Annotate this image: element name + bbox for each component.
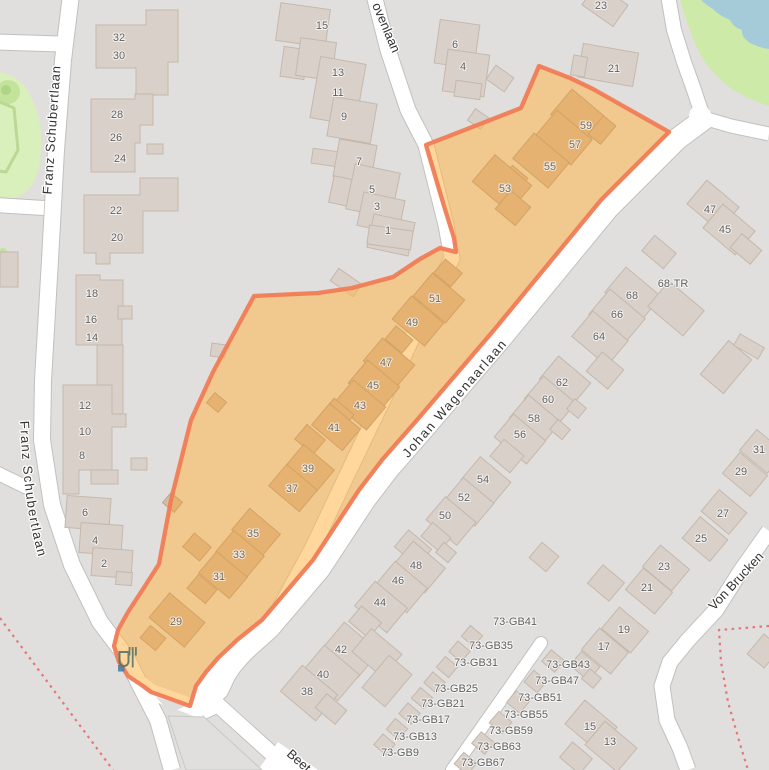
svg-text:4: 4 [92, 535, 98, 547]
svg-text:73-GB55: 73-GB55 [504, 709, 548, 721]
svg-text:68: 68 [626, 290, 638, 302]
svg-text:1: 1 [385, 225, 391, 237]
svg-text:6: 6 [82, 507, 88, 519]
svg-text:4: 4 [460, 61, 466, 73]
svg-text:57: 57 [569, 139, 581, 151]
svg-text:16: 16 [85, 314, 97, 326]
svg-text:31: 31 [213, 571, 225, 583]
svg-text:15: 15 [316, 20, 328, 32]
svg-text:56: 56 [514, 429, 526, 441]
svg-text:32: 32 [113, 32, 125, 44]
svg-text:68-TR: 68-TR [658, 278, 689, 290]
svg-text:73-GB47: 73-GB47 [535, 675, 579, 687]
svg-text:18: 18 [86, 288, 98, 300]
svg-text:25: 25 [695, 533, 707, 545]
svg-text:7: 7 [356, 156, 362, 168]
svg-text:40: 40 [317, 669, 329, 681]
svg-text:50: 50 [439, 510, 451, 522]
svg-text:29: 29 [170, 616, 182, 628]
svg-text:30: 30 [113, 50, 125, 62]
svg-text:55: 55 [544, 161, 556, 173]
svg-text:17: 17 [598, 641, 610, 653]
svg-text:41: 41 [328, 422, 340, 434]
svg-text:8: 8 [79, 450, 85, 462]
svg-text:62: 62 [556, 377, 568, 389]
svg-text:13: 13 [332, 67, 344, 79]
svg-text:44: 44 [374, 597, 386, 609]
svg-text:39: 39 [302, 463, 314, 475]
svg-text:73-GB35: 73-GB35 [469, 640, 513, 652]
svg-text:29: 29 [735, 466, 747, 478]
svg-text:73-GB43: 73-GB43 [546, 659, 590, 671]
svg-text:73-GB21: 73-GB21 [421, 698, 465, 710]
svg-text:20: 20 [111, 232, 123, 244]
svg-text:24: 24 [114, 153, 126, 165]
svg-text:45: 45 [719, 224, 731, 236]
svg-text:9: 9 [341, 111, 347, 123]
svg-text:58: 58 [528, 413, 540, 425]
svg-text:73-GB31: 73-GB31 [454, 657, 498, 669]
svg-text:51: 51 [429, 293, 441, 305]
svg-text:52: 52 [458, 492, 470, 504]
svg-text:73-GB17: 73-GB17 [406, 714, 450, 726]
svg-text:73-GB41: 73-GB41 [493, 616, 537, 628]
svg-text:47: 47 [380, 357, 392, 369]
svg-text:23: 23 [595, 0, 607, 12]
svg-text:21: 21 [641, 582, 653, 594]
svg-text:66: 66 [611, 309, 623, 321]
svg-text:15: 15 [584, 721, 596, 733]
svg-text:6: 6 [452, 39, 458, 51]
svg-text:59: 59 [580, 120, 592, 132]
svg-text:73-GB67: 73-GB67 [461, 757, 505, 769]
svg-text:3: 3 [374, 201, 380, 213]
svg-text:53: 53 [499, 183, 511, 195]
svg-text:38: 38 [301, 686, 313, 698]
svg-text:47: 47 [704, 204, 716, 216]
svg-text:26: 26 [110, 132, 122, 144]
svg-text:11: 11 [332, 87, 343, 99]
svg-text:22: 22 [110, 205, 122, 217]
svg-text:13: 13 [604, 736, 616, 748]
svg-text:21: 21 [608, 63, 620, 75]
svg-text:73-GB59: 73-GB59 [489, 725, 533, 737]
svg-text:49: 49 [406, 317, 418, 329]
svg-text:48: 48 [410, 560, 422, 572]
svg-text:60: 60 [542, 394, 554, 406]
svg-text:23: 23 [658, 561, 670, 573]
svg-text:37: 37 [286, 483, 298, 495]
svg-text:5: 5 [369, 184, 375, 196]
svg-text:73-GB25: 73-GB25 [434, 683, 478, 695]
svg-text:54: 54 [477, 474, 489, 486]
svg-text:73-GB63: 73-GB63 [477, 741, 521, 753]
svg-text:27: 27 [717, 508, 729, 520]
svg-text:73-GB9: 73-GB9 [381, 747, 419, 759]
svg-text:43: 43 [354, 400, 366, 412]
svg-text:19: 19 [618, 624, 630, 636]
svg-text:42: 42 [335, 644, 347, 656]
svg-text:31: 31 [753, 444, 765, 456]
svg-text:12: 12 [79, 400, 91, 412]
svg-text:28: 28 [111, 109, 123, 121]
svg-text:64: 64 [593, 331, 605, 343]
svg-text:35: 35 [247, 528, 259, 540]
svg-text:45: 45 [367, 380, 379, 392]
svg-text:73-GB13: 73-GB13 [393, 731, 437, 743]
svg-text:46: 46 [392, 575, 404, 587]
svg-text:33: 33 [233, 549, 245, 561]
svg-text:2: 2 [101, 558, 107, 570]
svg-text:73-GB51: 73-GB51 [518, 692, 562, 704]
svg-text:10: 10 [79, 426, 91, 438]
svg-text:14: 14 [86, 332, 98, 344]
